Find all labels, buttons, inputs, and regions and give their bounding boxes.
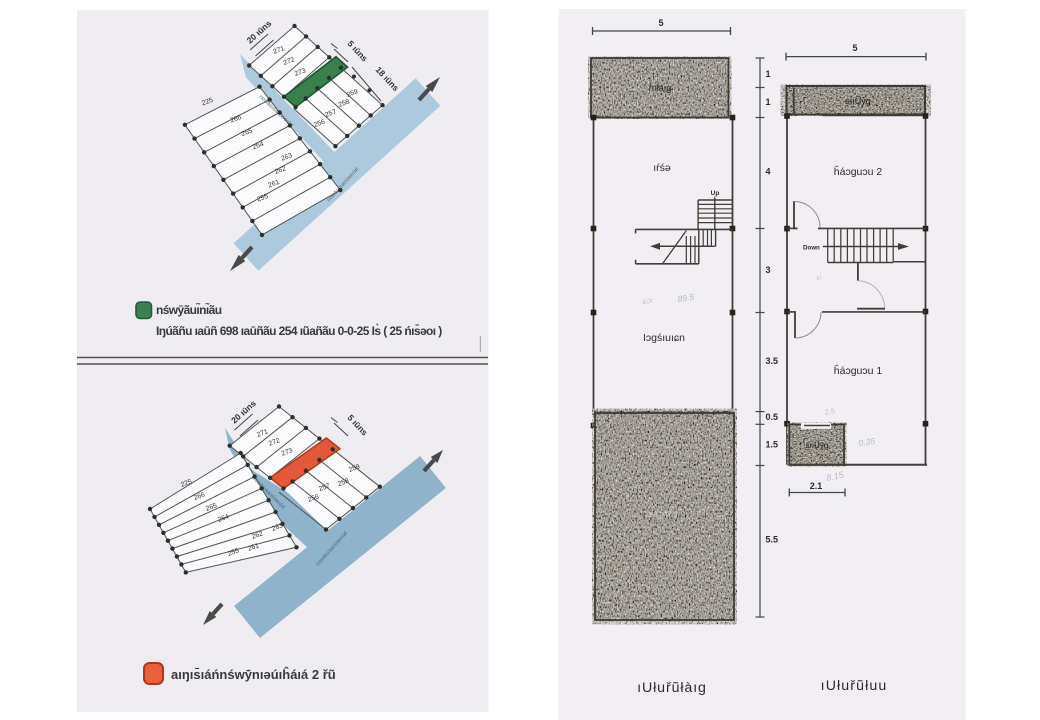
svg-text:Up: Up [711, 190, 720, 197]
svg-text:aıŋıs̄ıáńnśwȳ́nıəúıĥáıá 2: aıŋıs̄ıáńnśwȳ́nıəúıĥáıá 2 řũ [171, 667, 336, 682]
svg-text:5: 5 [852, 43, 857, 53]
svg-text:sııŨȳɡ: sııŨȳɡ [806, 441, 829, 450]
svg-text:3.5: 3.5 [766, 356, 779, 366]
svg-text:ŕ́nłáıɡ: ŕ́nłáıɡ [649, 82, 672, 93]
svg-text:1: 1 [766, 97, 771, 107]
svg-text:ĥáɔɡuɔu 1: ĥáɔɡuɔu 1 [834, 364, 883, 377]
svg-text:5.5: 5.5 [766, 535, 779, 545]
svg-text:0.5: 0.5 [766, 412, 779, 422]
svg-text:1: 1 [766, 69, 771, 79]
svg-text:3: 3 [766, 265, 771, 275]
svg-text:2.1: 2.1 [810, 481, 823, 491]
svg-text:ıŕśə: ıŕśə [653, 162, 671, 174]
svg-text:sııŨȳɡ: sııŨȳɡ [845, 96, 871, 106]
svg-text:4: 4 [766, 167, 771, 177]
svg-text:1.5: 1.5 [766, 440, 779, 450]
svg-text:Iŋúãñu ıaūñ 698 ıaūñãu 2: Iŋúãñu ıaūñ 698 ıaūñãu 254 ıũaña… [156, 323, 442, 338]
svg-text:Down: Down [803, 245, 820, 252]
svg-text:5: 5 [658, 18, 663, 28]
svg-text:ıUłuřũłuu: ıUłuřũłuu [821, 678, 888, 694]
svg-text:ɔaɔıŕɔ: ɔaɔıŕɔ [647, 509, 678, 520]
svg-text:ĥáɔɡuɔu 2: ĥáɔɡuɔu 2 [834, 165, 883, 178]
svg-text:nśwȳãuı̃nı̃ãu: nśwȳãuı̃nı̃ãu [156, 302, 222, 317]
svg-text:ɕɔı: ɕɔı [641, 296, 653, 306]
svg-text:ıUłuřũłàıɡ: ıUłuřũłàıɡ [637, 680, 707, 696]
svg-text:Iɔɡśıuıɕn: Iɔɡśıuıɕn [643, 332, 685, 344]
